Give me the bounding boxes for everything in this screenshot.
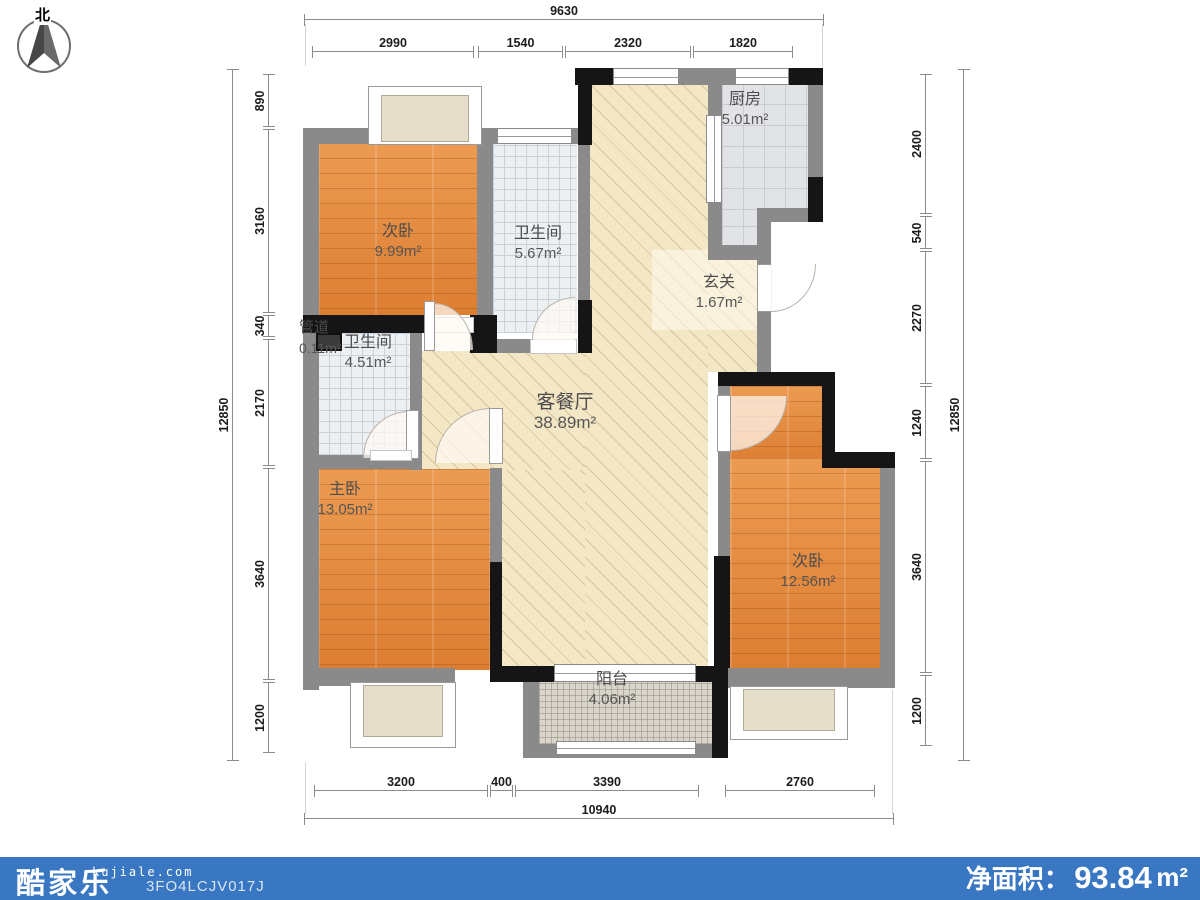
wall-entry-right-lower: [757, 308, 771, 374]
plan-code: 3FO4LCJV017J: [146, 878, 265, 895]
floor-plan-page: 北: [0, 0, 1200, 900]
room-label-bedroom-right: 次卧 12.56m²: [760, 552, 856, 592]
net-area: 净面积： 93.84 m²: [966, 861, 1188, 897]
wall-black-balcony-topleft: [490, 666, 556, 682]
extension-line: [892, 690, 893, 814]
door-threshold-bathmid: [370, 450, 412, 461]
wall-top-living: [675, 68, 737, 85]
dim-top-seg1: 2990: [313, 51, 473, 52]
wall-kitchen-jog: [757, 208, 808, 222]
dim-left-seg4: 2170: [268, 340, 269, 465]
bay-window-sill: [381, 95, 469, 142]
bay-window-master: [350, 682, 456, 748]
dim-left-seg3: 340: [268, 316, 269, 336]
dim-left-seg1: 890: [268, 75, 269, 126]
dim-left-seg6: 1200: [268, 683, 269, 752]
wall-bathtop-bottom: [493, 339, 533, 353]
wall-kitchen-right: [808, 85, 823, 177]
wall-black-top-right: [785, 68, 823, 85]
dim-right-seg6: 1200: [925, 676, 926, 745]
room-label-kitchen: 厨房 5.01m²: [697, 90, 793, 130]
room-label-living: 客餐厅 38.89m²: [517, 393, 613, 433]
dim-left-seg2: 3160: [268, 130, 269, 312]
dim-right-seg3: 2270: [925, 252, 926, 383]
dim-right-seg5: 3640: [925, 462, 926, 672]
window-bathtop: [497, 128, 572, 144]
window-living-top: [613, 68, 679, 85]
wall-black-master-living: [490, 562, 502, 682]
wall-black-kitchen-right: [808, 177, 823, 222]
bay-window-bedroomr: [730, 686, 848, 740]
net-area-unit: m²: [1156, 862, 1188, 892]
wall-master-living: [490, 468, 502, 562]
room-label-entry: 玄关 1.67m²: [671, 273, 767, 313]
dim-bottom-seg2: 400: [491, 790, 512, 791]
dim-top-seg4: 1820: [694, 51, 792, 52]
dim-bottom-seg4: 2760: [726, 790, 874, 791]
room-label-master: 主卧 13.05m²: [297, 480, 393, 520]
wall-black-bedroomr-left: [714, 556, 730, 668]
wall-black-bedroomr-jog-v: [822, 386, 835, 458]
wall-black-bathtop-lower: [578, 300, 592, 353]
extension-line: [305, 762, 306, 814]
compass-north-icon: 北: [8, 4, 80, 76]
wall-top-left: [303, 128, 375, 144]
room-label-bathroom-top: 卫生间 5.67m²: [490, 224, 586, 264]
window-kitchen-top: [735, 68, 789, 85]
wall-black-bedroomr-top: [718, 372, 835, 386]
living-floor-lowerleft: [502, 470, 585, 668]
bay-window-sill: [743, 689, 835, 731]
dim-left-seg5: 3640: [268, 469, 269, 679]
wall-black-balcony-right: [712, 666, 728, 758]
dim-right-seg1: 2400: [925, 75, 926, 213]
kitchen-floor-lower: [722, 210, 758, 248]
dim-right-seg4: 1240: [925, 387, 926, 458]
room-label-bathroom-mid: 卫生间 4.51m²: [320, 333, 416, 373]
dim-right-seg2: 540: [925, 217, 926, 248]
bay-window-sill: [363, 685, 443, 737]
net-area-label: 净面积：: [966, 864, 1070, 894]
wall-black-bathtop-upper: [578, 68, 592, 145]
compass-north-label: 北: [34, 4, 51, 25]
wall-outer-left: [303, 128, 319, 690]
door-leaf-bedroomr: [717, 395, 731, 452]
kujiale-website: kujiale.com: [92, 865, 193, 879]
dim-left-overall: 12850: [232, 70, 233, 760]
living-floor-center: [585, 85, 708, 668]
dim-top-overall: 9630: [305, 19, 823, 20]
door-arc-entry: [771, 264, 816, 312]
dim-bottom-seg1: 3200: [315, 790, 487, 791]
dim-bottom-overall: 10940: [305, 818, 893, 819]
wall-black-corner-block: [470, 315, 497, 353]
door-leaf-bedroomtl: [424, 301, 435, 351]
room-label-balcony: 阳台 4.06m²: [564, 670, 660, 710]
footer-bar: 酷家乐 kujiale.com 3FO4LCJV017J 净面积： 93.84 …: [0, 857, 1200, 900]
dim-top-seg2: 1540: [479, 51, 562, 52]
net-area-value: 93.84: [1074, 860, 1152, 895]
extension-line: [822, 24, 823, 66]
wall-kitchen-bottom: [708, 245, 757, 260]
dim-right-overall: 12850: [963, 70, 964, 760]
wall-bathtop-right: [578, 145, 590, 300]
wall-outer-right: [880, 455, 895, 680]
window-balcony-bottom: [556, 741, 696, 755]
wall-entry-right-upper: [757, 222, 771, 268]
bay-window-bedroomtl: [368, 86, 482, 145]
wall-bedroomr-bottom: [718, 668, 895, 688]
room-label-bedroom-topleft: 次卧 9.99m²: [350, 222, 446, 262]
door-leaf-master: [489, 408, 503, 464]
door-threshold-bathtop: [530, 339, 577, 354]
dim-bottom-seg3: 3390: [516, 790, 698, 791]
extension-line: [305, 24, 306, 66]
wall-black-bedroomr-jog-h: [822, 452, 895, 468]
dim-top-seg3: 2320: [566, 51, 690, 52]
